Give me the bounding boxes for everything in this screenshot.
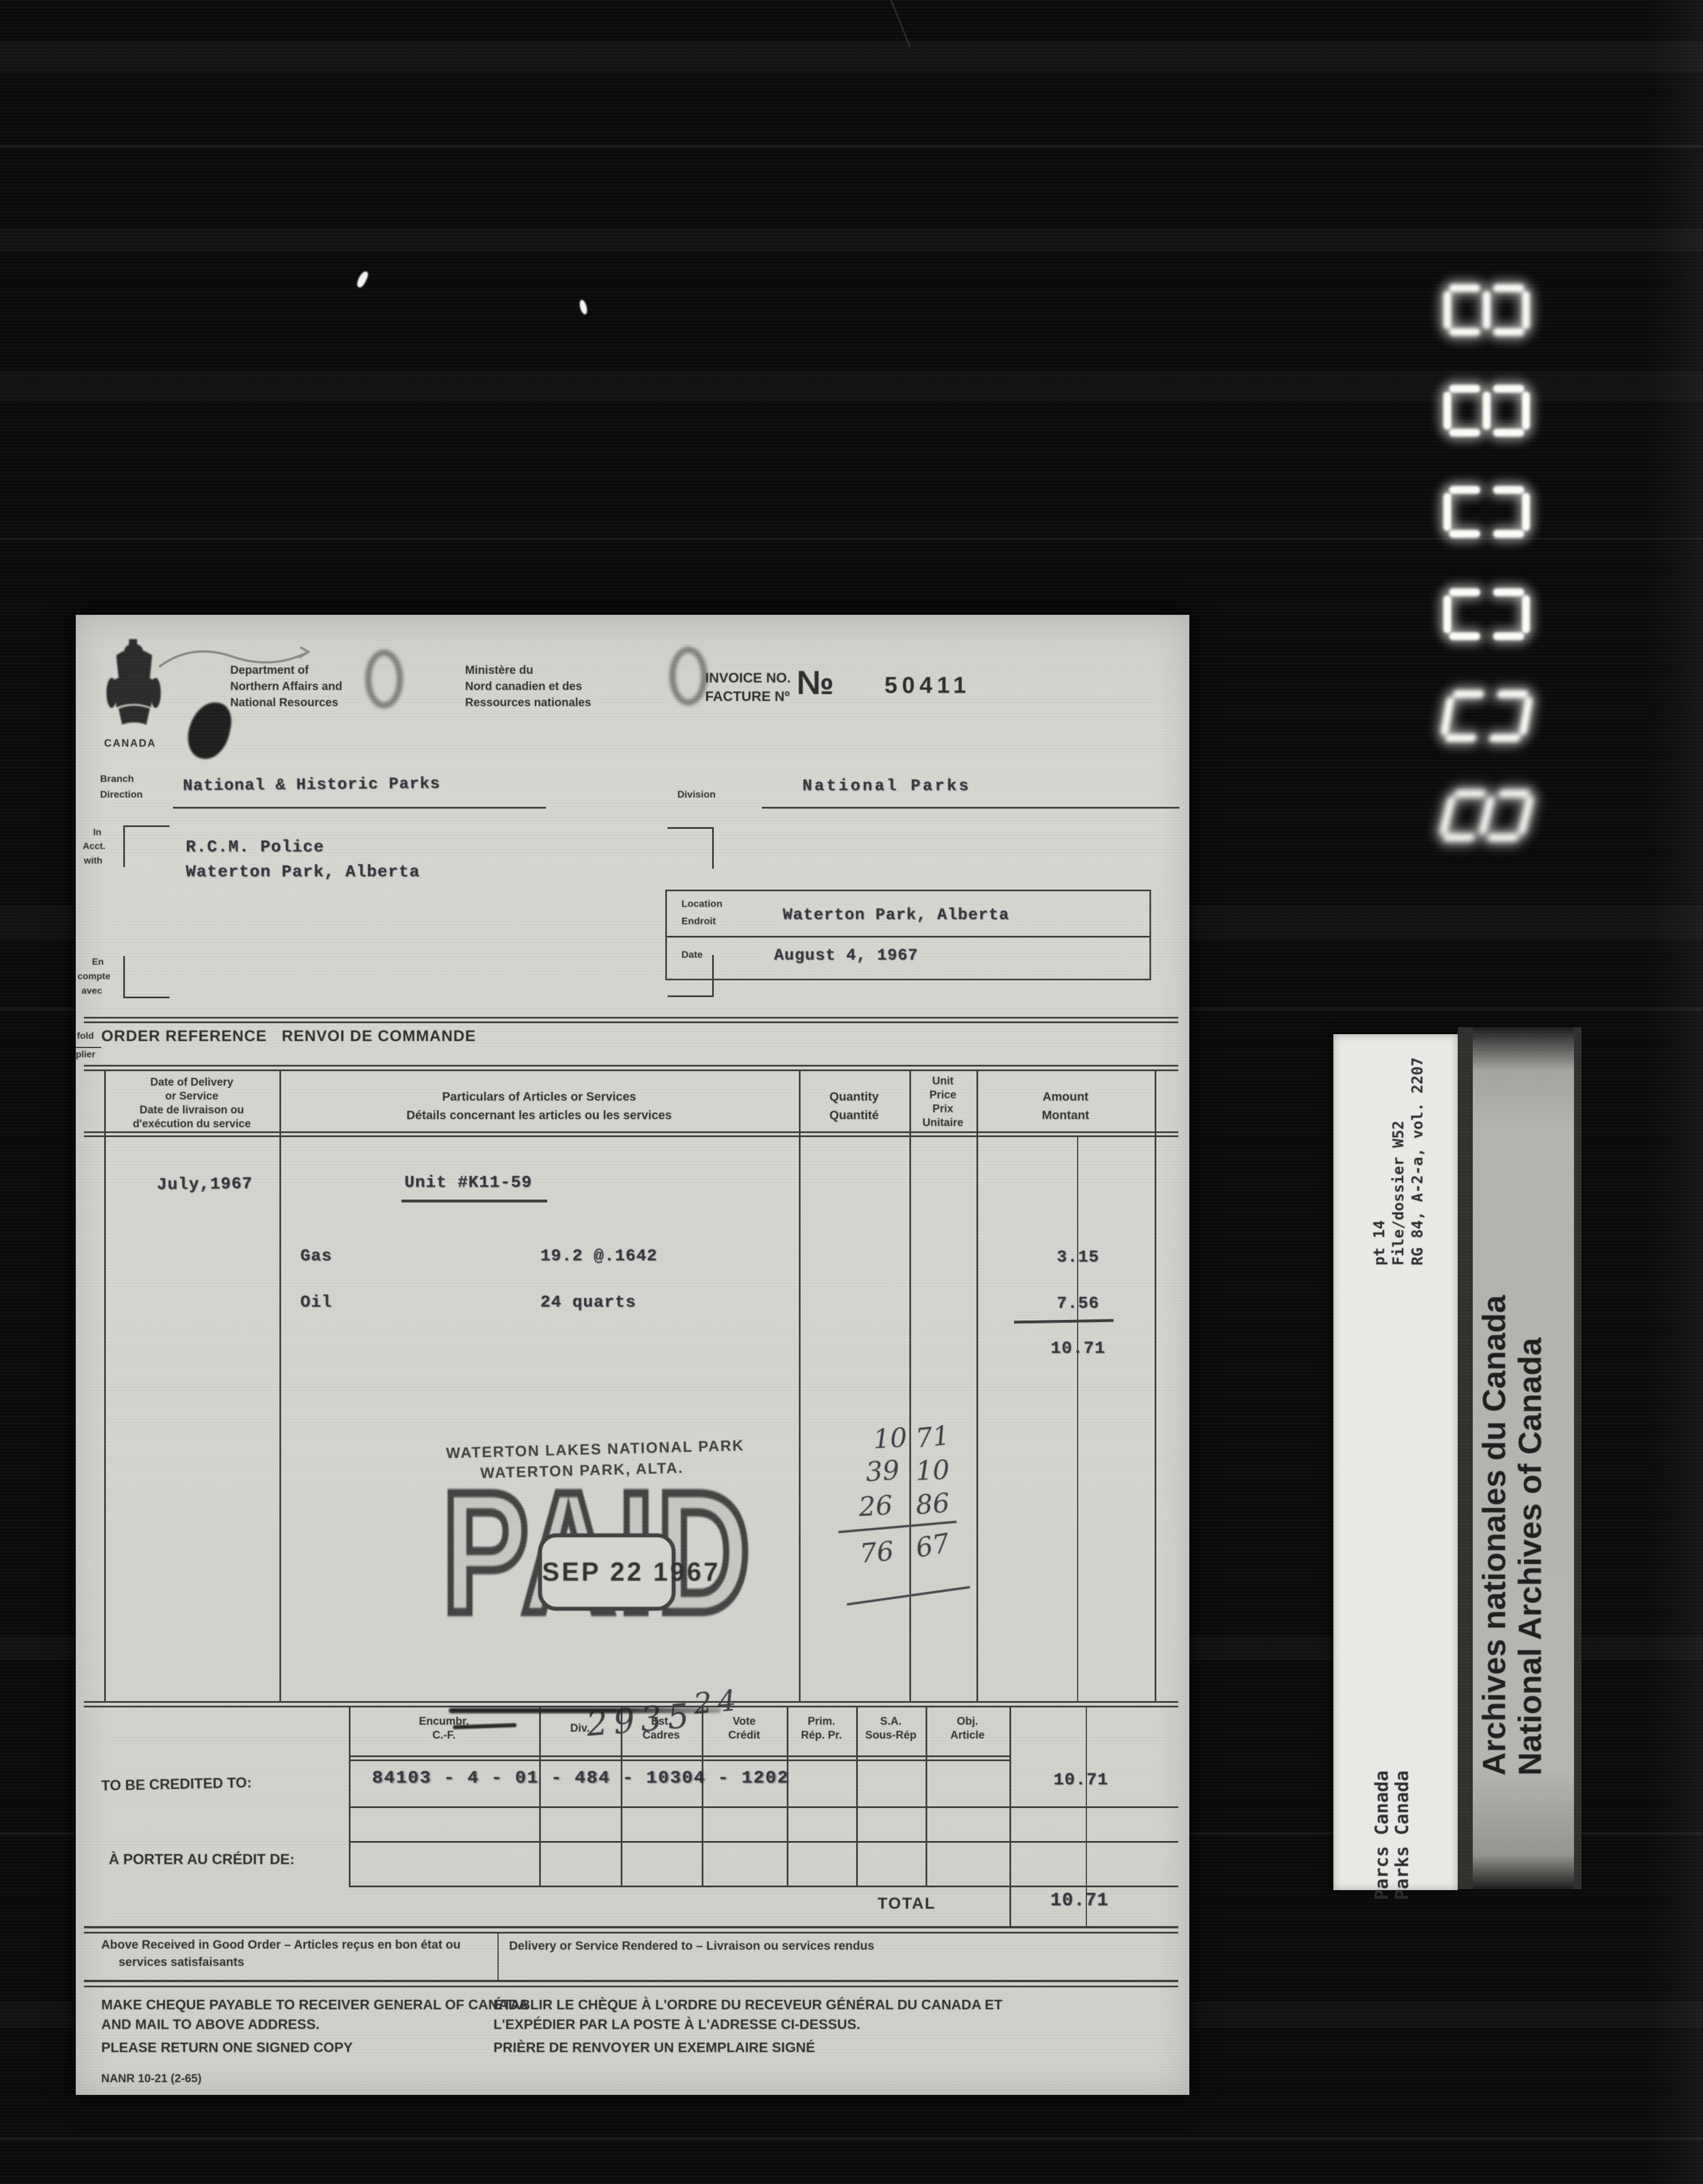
header-line: Unit — [909, 1075, 976, 1089]
film-scratch-arc — [877, 0, 911, 47]
credit-header-cell: Prim. Rép. Pr. — [787, 1715, 856, 1743]
table-border — [1155, 1069, 1156, 1702]
receipt-number: 293524 — [483, 1652, 748, 1792]
department-name-en: Department of Northern Affairs and Natio… — [230, 662, 342, 711]
credit-header-line: Rép. Pr. — [787, 1729, 856, 1743]
dept-fr-line: Ministère du — [465, 662, 591, 678]
location-label-fr: Endroit — [681, 916, 716, 927]
acct-label-en-3: with — [84, 856, 102, 866]
date-value: August 4, 1967 — [774, 947, 918, 965]
canada-crest — [99, 638, 165, 739]
location-label-en: Location — [681, 898, 723, 910]
table-header-quantity: Quantity Quantité — [799, 1088, 909, 1125]
footer-divider — [497, 1932, 499, 1982]
bracket-line — [123, 997, 169, 998]
header-line: Date de livraison ou — [104, 1104, 279, 1117]
header-line: Particulars of Articles or Services — [279, 1088, 799, 1106]
location-date-box: Location Endroit Waterton Park, Alberta … — [665, 890, 1151, 980]
payable-fr-line: PRIÈRE DE RENVOYER UN EXEMPLAIRE SIGNÉ — [493, 2040, 815, 2056]
item-quantity: 19.2 @.1642 — [540, 1246, 657, 1266]
amount-underline — [1014, 1319, 1114, 1323]
header-line: Date of Delivery — [104, 1076, 279, 1090]
division-underline — [762, 807, 1179, 809]
account-name: R.C.M. Police — [186, 838, 324, 857]
ink-smear — [449, 1708, 721, 1713]
fold-label-fr: plier — [76, 1050, 95, 1060]
table-column-line — [909, 1069, 911, 1702]
unit-heading-underline — [401, 1200, 547, 1202]
location-value: Waterton Park, Alberta — [783, 906, 1009, 924]
credit-header-line: Obj. — [926, 1715, 1009, 1729]
payable-fr-line: L'EXPÉDIER PAR LA POSTE À L'ADRESSE CI-D… — [493, 2017, 860, 2033]
bracket-line — [123, 825, 169, 827]
tally-cents: 71 — [914, 1419, 951, 1454]
fold-divider — [76, 1047, 101, 1048]
parks-line: Parks Canada — [1392, 1761, 1413, 1900]
acct-label-fr-3: avec — [82, 986, 102, 997]
tally-dollars: 76 — [828, 1535, 895, 1572]
dept-en-line: Northern Affairs and — [230, 678, 342, 695]
header-line: d'exécution du service — [104, 1117, 279, 1131]
receipt-number-raised: 24 — [692, 1683, 743, 1721]
porter-credit-label: À PORTER AU CRÉDIT DE: — [109, 1851, 294, 1868]
credit-header-cell: S.A. Sous-Rép — [856, 1715, 926, 1743]
branch-underline — [173, 807, 546, 809]
stamp-date-box: SEP 22 1967 — [538, 1533, 676, 1611]
payable-fr-line: ÉTABLIR LE CHÈQUE À L'ORDRE DU RECEVEUR … — [493, 1997, 1002, 2013]
bracket-line — [712, 827, 714, 869]
division-label: Division — [677, 789, 716, 800]
unit-heading: Unit #K11-59 — [404, 1173, 532, 1192]
credit-header-line: Article — [926, 1729, 1009, 1743]
tally-dollars: 26 — [827, 1489, 894, 1524]
credit-header-line: Sous-Rép — [856, 1729, 926, 1743]
film-counter-digit — [1440, 364, 1533, 457]
double-rule — [84, 1980, 1178, 1982]
dept-en-line: Department of — [230, 662, 342, 678]
film-counter-digit — [1440, 568, 1533, 661]
header-line: Quantity — [799, 1088, 909, 1106]
received-text: Above Received in Good Order – Articles … — [101, 1938, 460, 1952]
double-rule — [84, 1932, 1178, 1934]
tally-cents: 10 — [915, 1454, 950, 1486]
acct-label-en-1: In — [93, 828, 101, 838]
tally-cents: 67 — [913, 1527, 952, 1563]
header-line: Détails concernant les articles ou les s… — [279, 1106, 799, 1125]
delivery-text: Delivery or Service Rendered to – Livrai… — [509, 1939, 874, 1953]
tally-underline — [847, 1586, 970, 1606]
reference-line: File/dossier W52 — [1389, 1057, 1409, 1266]
order-reference-label: ORDER REFERENCE RENVOI DE COMMANDE — [101, 1027, 476, 1045]
received-text-2: services satisfaisants — [119, 1956, 244, 1969]
branch-label-en: Branch — [100, 773, 134, 785]
credit-row-line — [349, 1886, 1178, 1887]
credit-header-line: Prim. — [787, 1715, 856, 1729]
credit-column-line — [1009, 1706, 1011, 1927]
item-label: Oil — [300, 1293, 332, 1312]
archives-line-en: National Archives of Canada — [1512, 1255, 1548, 1776]
archives-line-fr: Archives nationales du Canada — [1476, 1255, 1512, 1776]
tally-cents: 86 — [915, 1487, 950, 1521]
dept-fr-line: Ressources nationales — [465, 695, 591, 711]
department-name-fr: Ministère du Nord canadien et des Ressou… — [465, 662, 591, 711]
credit-header-cell: Obj. Article — [926, 1715, 1009, 1743]
receipt-number-main: 2935 — [585, 1695, 696, 1744]
subtotal-amount: 10.71 — [1024, 1339, 1131, 1359]
header-line: or Service — [104, 1090, 279, 1104]
double-rule — [84, 1131, 1178, 1133]
double-rule — [84, 1065, 1178, 1067]
table-border — [104, 1069, 106, 1702]
table-column-line — [799, 1069, 801, 1702]
dust-speck — [355, 270, 369, 289]
table-header-date: Date of Delivery or Service Date de livr… — [104, 1076, 279, 1131]
item-quantity: 24 quarts — [540, 1293, 636, 1312]
film-streak — [1649, 0, 1703, 2184]
tally-dollars: 39 — [834, 1454, 900, 1490]
credit-header-line: S.A. — [856, 1715, 926, 1729]
punch-hole-mark — [669, 647, 707, 706]
reference-line: RG 84, A-2-a, vol. 2207 — [1409, 1057, 1428, 1266]
film-band — [0, 228, 1703, 252]
ink-blot — [183, 698, 235, 763]
dept-fr-line: Nord canadien et des — [465, 678, 591, 695]
double-rule — [84, 1021, 1178, 1023]
credit-row-line — [349, 1841, 1178, 1843]
table-column-line — [279, 1069, 281, 1702]
item-label: Gas — [300, 1246, 332, 1266]
microfilm-frame: CANADA Department of Northern Affairs an… — [0, 0, 1703, 2184]
header-line: Montant — [976, 1106, 1155, 1125]
table-header-unit-price: Unit Price Prix Unitaire — [909, 1075, 976, 1130]
table-column-line — [976, 1069, 978, 1702]
bracket-line — [123, 956, 125, 998]
acct-label-fr-2: compte — [78, 972, 110, 982]
double-rule — [84, 1926, 1178, 1928]
payable-en-line: PLEASE RETURN ONE SIGNED COPY — [101, 2040, 353, 2056]
table-header-amount: Amount Montant — [976, 1088, 1155, 1125]
double-rule — [84, 1017, 1178, 1019]
invoice-document: CANADA Department of Northern Affairs an… — [76, 615, 1189, 2095]
form-number: NANR 10-21 (2-65) — [101, 2072, 201, 2086]
header-line: Quantité — [799, 1106, 909, 1125]
stamp-date: SEP 22 1967 — [542, 1537, 672, 1607]
branch-label-fr: Direction — [100, 789, 143, 800]
dust-speck — [578, 299, 588, 315]
archive-reference-label: RG 84, A-2-a, vol. 2207 File/dossier W52… — [1370, 1057, 1428, 1266]
film-band — [0, 40, 1703, 72]
film-counter-digit — [1440, 466, 1533, 558]
invoice-no-label-en: INVOICE NO. — [705, 670, 791, 687]
film-counter-digit — [1440, 264, 1533, 356]
numero-symbol: № — [797, 663, 834, 702]
header-line: Price — [909, 1089, 976, 1102]
archives-banner-label: National Archives of Canada Archives nat… — [1474, 1255, 1548, 1776]
parks-canada-label: Parks Canada Parcs Canada — [1372, 1761, 1413, 1900]
dept-en-line: National Resources — [230, 695, 342, 711]
film-scratch — [0, 145, 1703, 148]
credit-row-line — [349, 1806, 1178, 1808]
punch-hole-mark — [365, 650, 403, 709]
box-divider — [667, 936, 1149, 938]
film-counter-digit — [1440, 670, 1533, 762]
payable-en-line: AND MAIL TO ABOVE ADDRESS. — [101, 2017, 319, 2033]
double-rule — [84, 1069, 1178, 1071]
invoice-no-label-fr: FACTURE Nº — [705, 689, 790, 705]
item-amount: 3.15 — [1030, 1248, 1126, 1267]
reference-line: pt 14 — [1370, 1057, 1389, 1266]
payable-en-line: MAKE CHEQUE PAYABLE TO RECEIVER GENERAL … — [101, 1997, 528, 2013]
header-line: Amount — [976, 1088, 1155, 1106]
bracket-line — [123, 825, 125, 867]
division-value: National Parks — [802, 777, 971, 795]
crest-caption: CANADA — [99, 737, 161, 750]
bracket-line — [668, 827, 714, 829]
header-line: Unitaire — [909, 1116, 976, 1130]
total-label: TOTAL — [878, 1894, 936, 1913]
bracket-line — [668, 995, 714, 997]
parks-line: Parcs Canada — [1372, 1761, 1392, 1900]
double-rule — [84, 1986, 1178, 1987]
double-rule — [84, 1135, 1178, 1137]
table-header-particulars: Particulars of Articles or Services Déta… — [279, 1088, 799, 1125]
tally-dollars: 10 — [842, 1422, 908, 1456]
film-counter-digit — [1440, 769, 1533, 862]
cents-divider-line — [1077, 1135, 1078, 1702]
fold-label-en: fold — [77, 1031, 94, 1042]
date-label: Date — [681, 949, 703, 961]
total-amount: 10.71 — [1024, 1890, 1134, 1911]
credited-to-label: TO BE CREDITED TO: — [101, 1774, 252, 1794]
film-scratch — [0, 2137, 1703, 2141]
acct-label-en-2: Acct. — [83, 842, 105, 852]
acct-label-fr-1: En — [92, 957, 104, 968]
header-line: Prix — [909, 1102, 976, 1116]
service-date: July,1967 — [157, 1174, 253, 1194]
credit-amount: 10.71 — [1027, 1770, 1134, 1790]
branch-value: National & Historic Parks — [183, 775, 440, 795]
account-address: Waterton Park, Alberta — [186, 862, 420, 881]
invoice-number: 50411 — [884, 673, 971, 699]
item-amount: 7.56 — [1030, 1294, 1126, 1313]
